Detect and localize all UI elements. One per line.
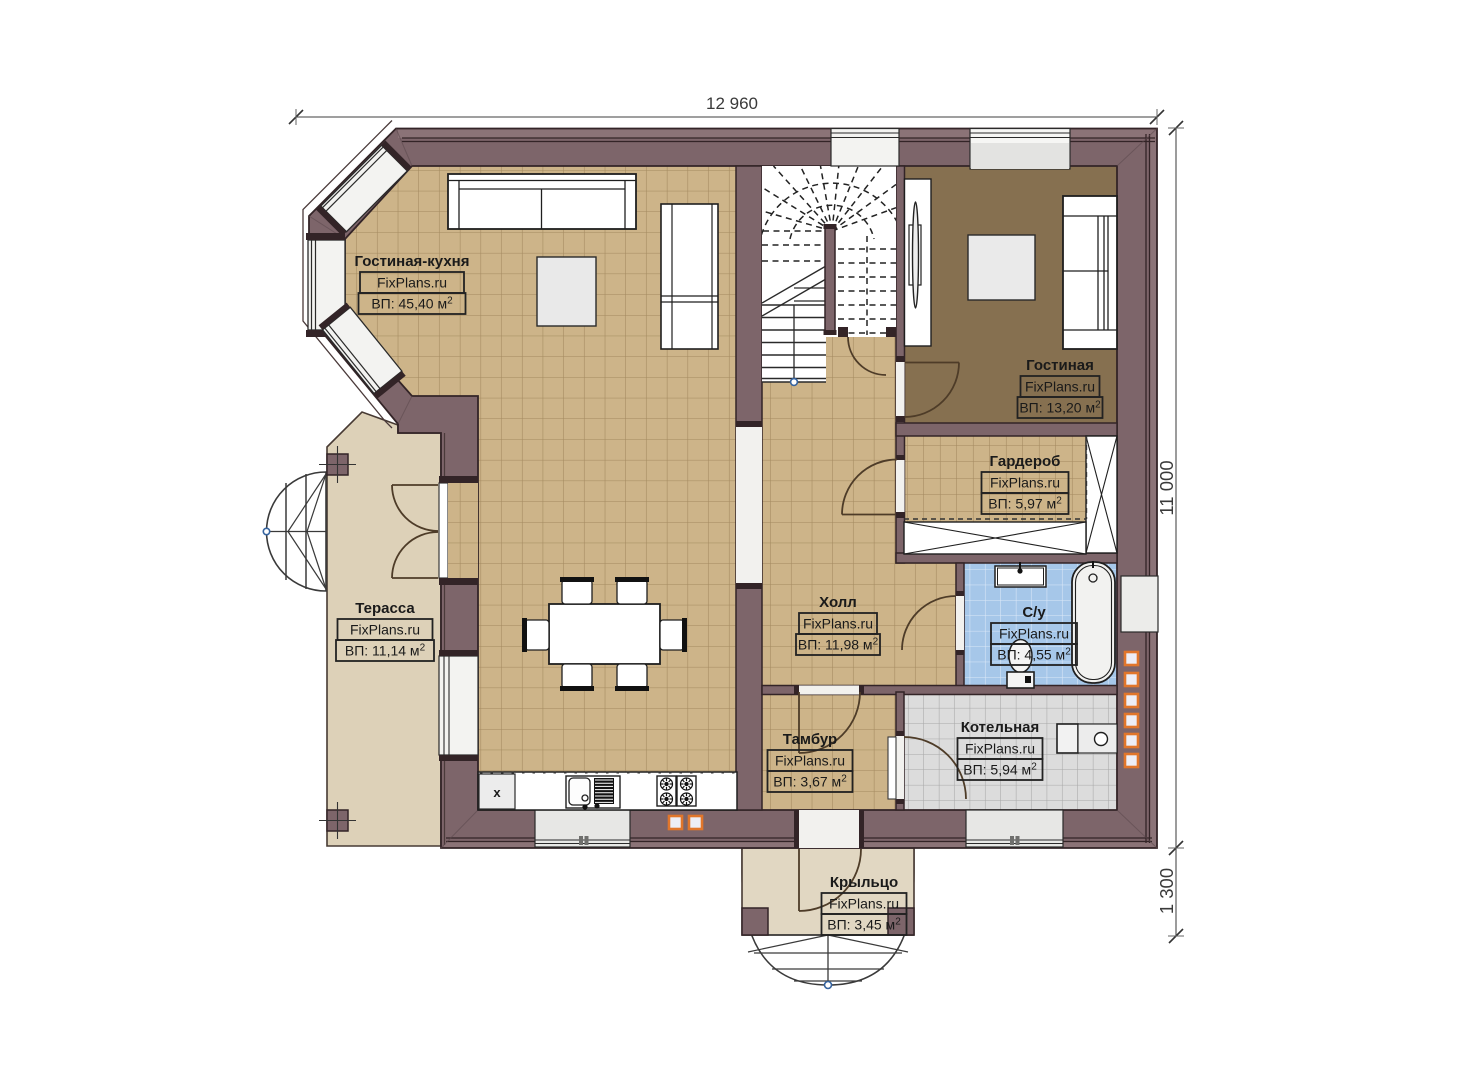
svg-text:ВП: 3,67 м2: ВП: 3,67 м2 xyxy=(773,774,847,790)
svg-text:Гостиная: Гостиная xyxy=(1026,357,1094,374)
svg-text:1 300: 1 300 xyxy=(1156,868,1177,914)
svg-text:Гардероб: Гардероб xyxy=(990,453,1061,470)
svg-text:FixPlans.ru: FixPlans.ru xyxy=(350,622,420,638)
svg-text:Крыльцо: Крыльцо xyxy=(830,874,898,891)
svg-text:FixPlans.ru: FixPlans.ru xyxy=(377,275,447,291)
svg-text:12 960: 12 960 xyxy=(706,94,758,113)
svg-text:Терасса: Терасса xyxy=(355,600,415,617)
svg-text:ВП: 5,94 м2: ВП: 5,94 м2 xyxy=(963,762,1037,778)
svg-text:ВП: 13,20 м2: ВП: 13,20 м2 xyxy=(1019,400,1101,416)
svg-text:FixPlans.ru: FixPlans.ru xyxy=(803,616,873,632)
svg-text:ВП: 45,40 м2: ВП: 45,40 м2 xyxy=(371,296,453,312)
svg-text:Котельная: Котельная xyxy=(961,719,1040,736)
svg-text:FixPlans.ru: FixPlans.ru xyxy=(990,475,1060,491)
svg-text:Тамбур: Тамбур xyxy=(783,731,837,748)
svg-text:Гостиная-кухня: Гостиная-кухня xyxy=(355,253,470,270)
svg-text:ВП: 11,98 м2: ВП: 11,98 м2 xyxy=(798,637,879,653)
svg-text:Холл: Холл xyxy=(819,594,857,611)
svg-text:FixPlans.ru: FixPlans.ru xyxy=(829,896,899,912)
svg-text:FixPlans.ru: FixPlans.ru xyxy=(775,753,845,769)
svg-text:FixPlans.ru: FixPlans.ru xyxy=(999,626,1069,642)
svg-text:FixPlans.ru: FixPlans.ru xyxy=(965,741,1035,757)
svg-text:11 000: 11 000 xyxy=(1156,460,1177,515)
svg-text:ВП: 5,97 м2: ВП: 5,97 м2 xyxy=(988,496,1062,512)
svg-text:ВП: 4,55 м2: ВП: 4,55 м2 xyxy=(997,647,1071,663)
svg-text:С/у: С/у xyxy=(1022,604,1046,621)
svg-text:x: x xyxy=(493,785,501,800)
svg-text:FixPlans.ru: FixPlans.ru xyxy=(1025,379,1095,395)
svg-text:ВП: 11,14 м2: ВП: 11,14 м2 xyxy=(345,643,426,659)
svg-text:ВП: 3,45 м2: ВП: 3,45 м2 xyxy=(827,917,901,933)
